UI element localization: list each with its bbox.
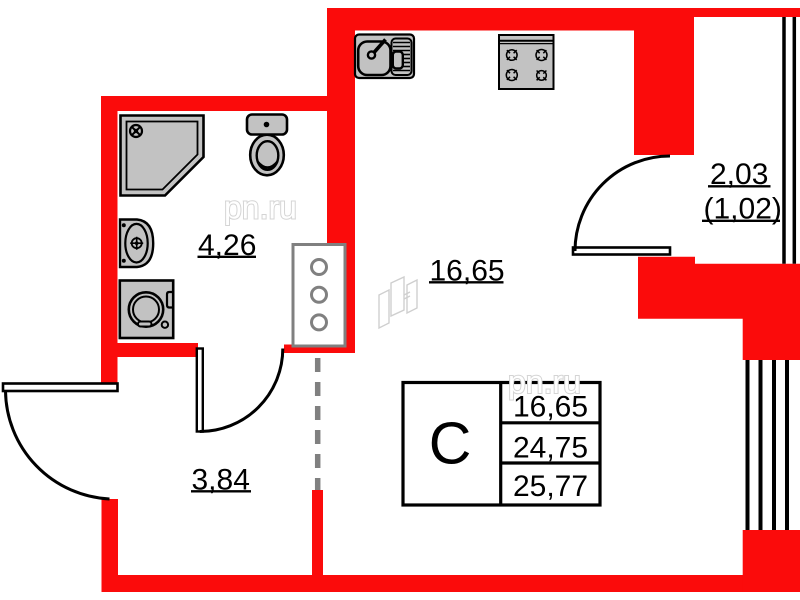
svg-text:24,75: 24,75 bbox=[513, 431, 588, 464]
svg-text:pn.ru: pn.ru bbox=[224, 190, 297, 226]
svg-text:С: С bbox=[429, 410, 472, 476]
svg-text:pn.ru: pn.ru bbox=[508, 364, 581, 400]
svg-text:25,77: 25,77 bbox=[513, 470, 588, 503]
